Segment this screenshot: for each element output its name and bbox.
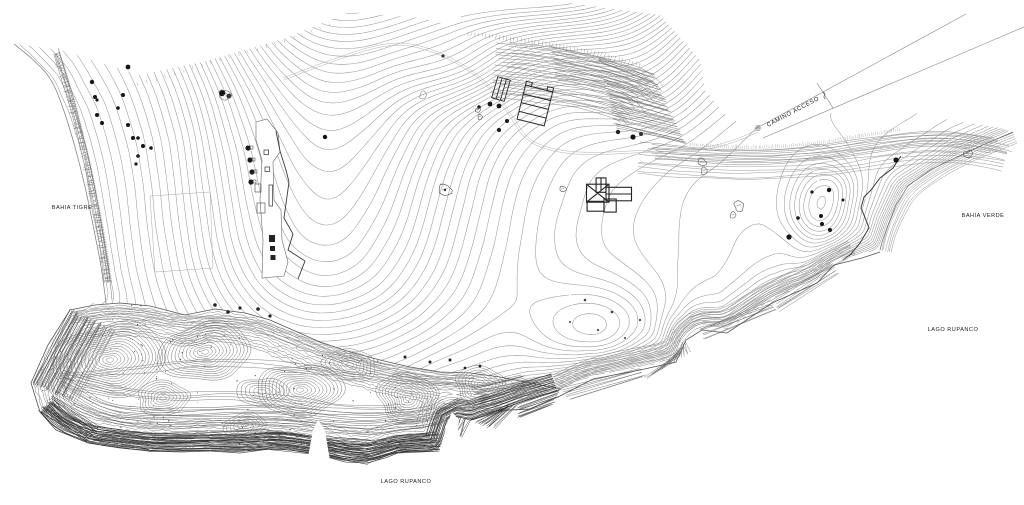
svg-text:BAHIA TIGRE: BAHIA TIGRE (52, 205, 93, 211)
svg-text:LAGO RUPANCO: LAGO RUPANCO (928, 327, 979, 333)
svg-text:BAHIA VERDE: BAHIA VERDE (962, 213, 1005, 219)
svg-text:LAGO RUPANCO: LAGO RUPANCO (381, 479, 432, 485)
